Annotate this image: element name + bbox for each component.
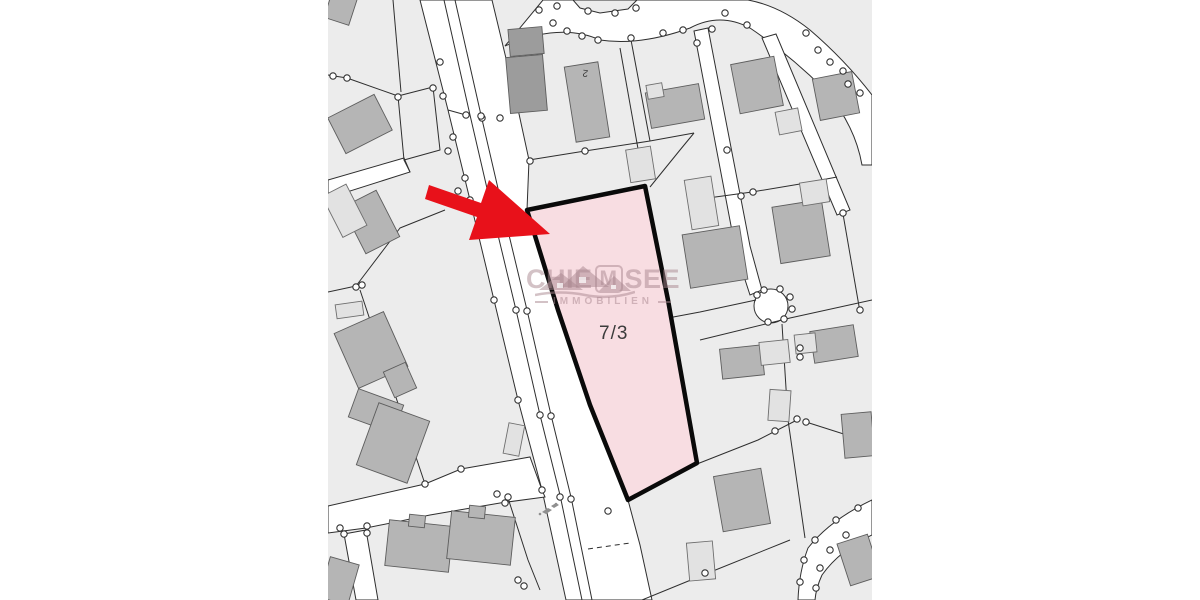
parcel-number-label: 7/3 bbox=[599, 323, 628, 345]
cadastral-map-screenshot: 2 CHIEMSEE IMMOBILIEN 7/3 bbox=[0, 0, 1200, 600]
buildings-dark-layer bbox=[506, 27, 548, 114]
map-canvas: 2 bbox=[0, 0, 1200, 600]
